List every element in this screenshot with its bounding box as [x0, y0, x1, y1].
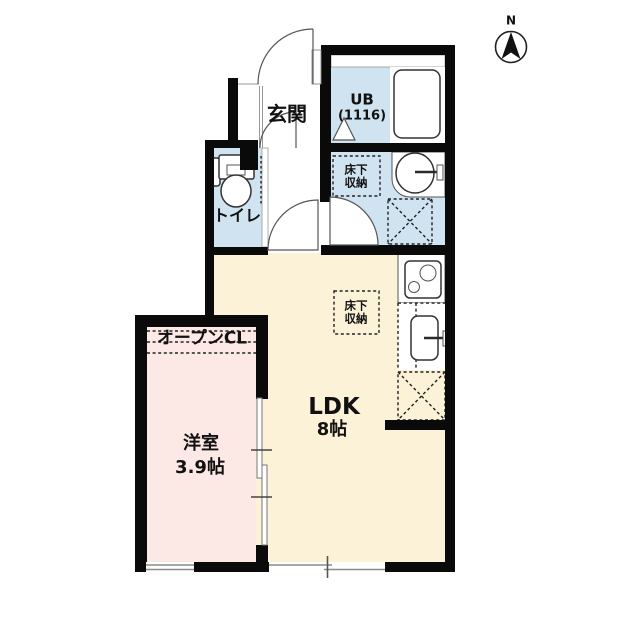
ldk-label: LDK	[308, 395, 360, 421]
western-room-size-label: 3.9帖	[175, 458, 225, 478]
wall-partition-upper	[256, 327, 268, 399]
washbasin-faucet-handle	[437, 165, 443, 180]
storage-wash-label-l2: 収納	[345, 177, 368, 190]
wall-partition-lower	[256, 545, 268, 572]
sliding-door-panel2	[262, 465, 267, 545]
wall-kitchen-stub	[385, 420, 447, 430]
wall-outer-right	[445, 45, 455, 572]
wall-toilet-bottom	[205, 247, 268, 255]
toilet-label: トイレ	[213, 207, 261, 225]
bath-window-band	[331, 55, 445, 67]
toilet-right-partition	[262, 148, 268, 247]
floorplan: 玄関 UB (1116) トイレ 床下 収納 床下 収納 LDK 8帖 洋室 3…	[0, 0, 640, 640]
wall-washroom-ldk	[321, 245, 455, 255]
storage-ldk-label-l2: 収納	[345, 313, 368, 326]
stove-burner-large	[420, 265, 436, 281]
wall-entrance-right	[320, 55, 331, 202]
entrance-door-arc	[258, 29, 313, 84]
genkan-label: 玄関	[267, 103, 307, 125]
western-window-gap	[146, 562, 194, 572]
stove-burner-small	[409, 282, 420, 293]
north-arrow-icon	[502, 32, 521, 59]
wall-western-top	[135, 315, 268, 327]
storage-ldk-label-l1: 床下	[345, 300, 368, 313]
western-room-label: 洋室	[183, 434, 219, 454]
open-closet-label: オープンCL	[157, 329, 247, 348]
wall-left-mid	[205, 140, 214, 327]
floorplan-drawing	[0, 0, 640, 640]
toilet-bowl	[221, 175, 251, 207]
wall-bath-washroom	[321, 143, 455, 152]
sliding-door-panel1	[257, 398, 262, 478]
storage-wash-label-l1: 床下	[345, 164, 368, 177]
ub-size-label: (1116)	[338, 110, 386, 125]
hall-ldk-door-arc	[268, 200, 318, 250]
bathtub	[394, 70, 440, 138]
wall-western-left	[135, 315, 147, 572]
ub-label: UB	[350, 92, 374, 109]
compass-n-label: N	[506, 14, 516, 27]
wall-entrance-stub	[240, 148, 258, 170]
ldk-size-label: 8帖	[317, 420, 348, 440]
wall-outer-top	[321, 45, 455, 55]
wall-entrance-left	[228, 78, 238, 148]
